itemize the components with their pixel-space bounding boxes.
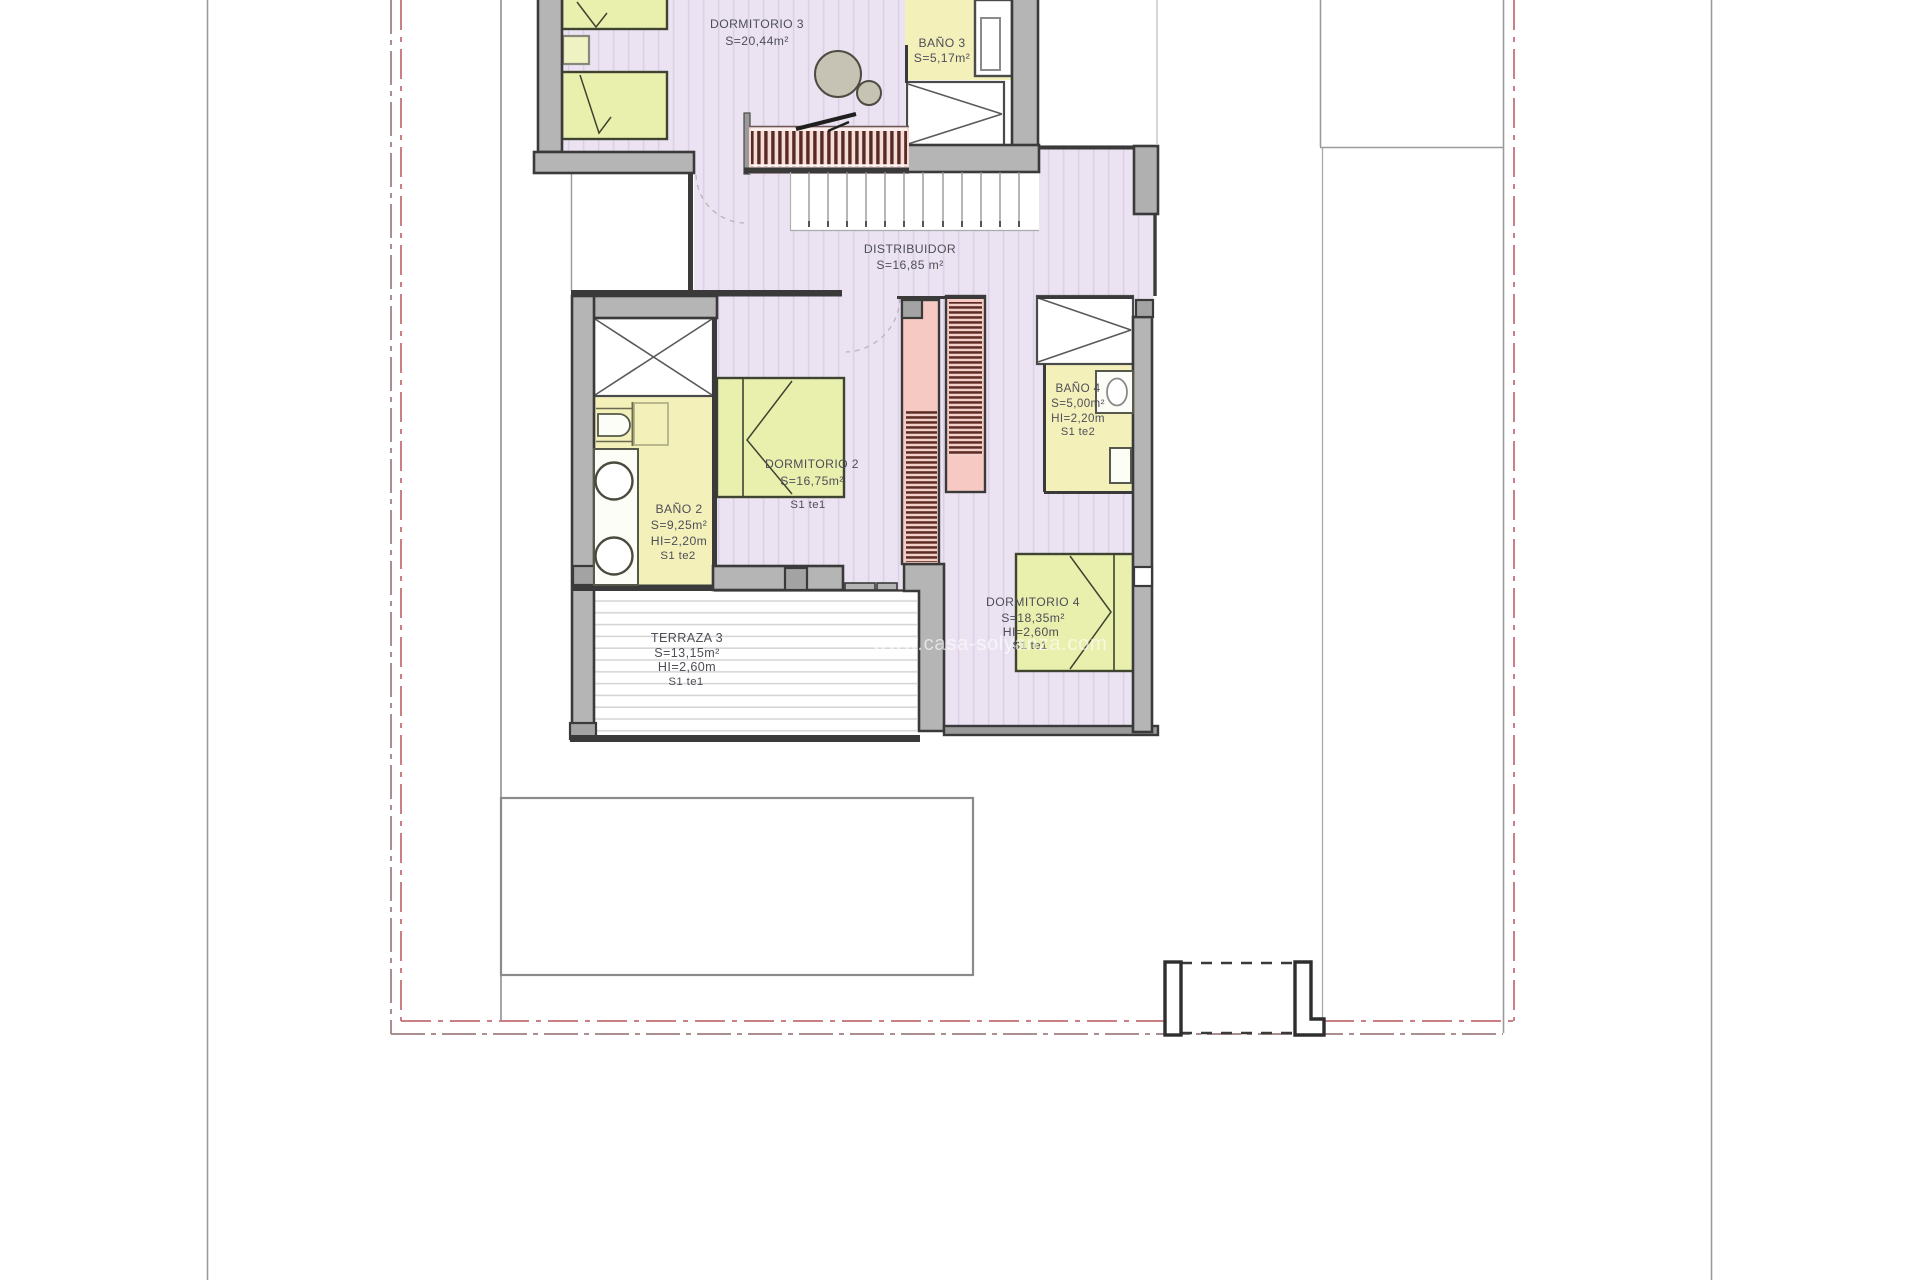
svg-text:BAÑO 4: BAÑO 4	[1056, 382, 1101, 395]
svg-text:S=20,44m²: S=20,44m²	[725, 34, 789, 48]
svg-text:HI=2,20m: HI=2,20m	[1051, 412, 1105, 425]
svg-text:S=18,35m²: S=18,35m²	[1001, 611, 1065, 625]
svg-text:S=5,17m²: S=5,17m²	[914, 51, 970, 65]
svg-text:DORMITORIO 3: DORMITORIO 3	[710, 17, 804, 31]
svg-text:S=13,15m²: S=13,15m²	[654, 646, 720, 660]
svg-text:S1 te1: S1 te1	[668, 676, 703, 688]
svg-text:BAÑO 2: BAÑO 2	[655, 502, 702, 516]
svg-text:DORMITORIO 4: DORMITORIO 4	[986, 595, 1080, 609]
svg-text:S1 te1: S1 te1	[790, 499, 825, 511]
svg-text:S1 te2: S1 te2	[1061, 426, 1095, 438]
svg-text:HI=2,20m: HI=2,20m	[651, 534, 707, 548]
svg-text:S=9,25m²: S=9,25m²	[651, 518, 707, 532]
svg-text:DISTRIBUIDOR: DISTRIBUIDOR	[864, 242, 956, 256]
svg-text:HI=2,60m: HI=2,60m	[658, 660, 716, 674]
svg-text:BAÑO 3: BAÑO 3	[918, 36, 965, 50]
svg-text:TERRAZA 3: TERRAZA 3	[651, 631, 723, 645]
svg-text:S=16,75m²: S=16,75m²	[780, 474, 844, 488]
svg-text:DORMITORIO 2: DORMITORIO 2	[765, 457, 859, 471]
svg-text:S1 te2: S1 te2	[660, 550, 695, 562]
svg-text:S=5,00m²: S=5,00m²	[1051, 397, 1105, 410]
svg-text:www.casa-solyanza.com: www.casa-solyanza.com	[872, 632, 1108, 655]
svg-text:S=16,85 m²: S=16,85 m²	[876, 258, 943, 272]
